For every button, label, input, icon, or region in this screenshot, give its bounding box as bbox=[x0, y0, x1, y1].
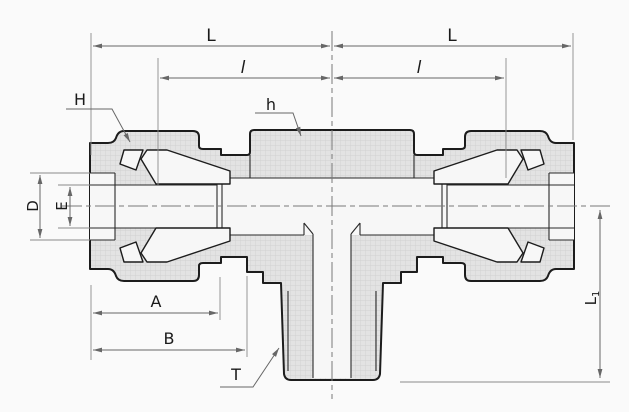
dim-label-L-left: L bbox=[206, 26, 216, 46]
dim-label-l-right: l bbox=[417, 58, 422, 78]
dim-label-T: T bbox=[230, 365, 241, 384]
drawing-canvas: L L l l H h D E A B T L1 bbox=[0, 0, 629, 412]
dim-label-E: E bbox=[53, 201, 71, 210]
dim-label-H: H bbox=[74, 90, 86, 109]
dim-label-l-left: l bbox=[241, 58, 246, 78]
dim-label-B: B bbox=[164, 329, 175, 348]
dim-label-h: h bbox=[266, 95, 276, 114]
dim-label-A: A bbox=[151, 292, 162, 311]
dim-label-L-right: L bbox=[447, 26, 457, 46]
dim-label-L1-subscript: 1 bbox=[591, 291, 602, 297]
tee-fitting-section-drawing: L L l l H h D E A B T L1 bbox=[0, 0, 629, 412]
dim-label-D: D bbox=[24, 200, 42, 212]
